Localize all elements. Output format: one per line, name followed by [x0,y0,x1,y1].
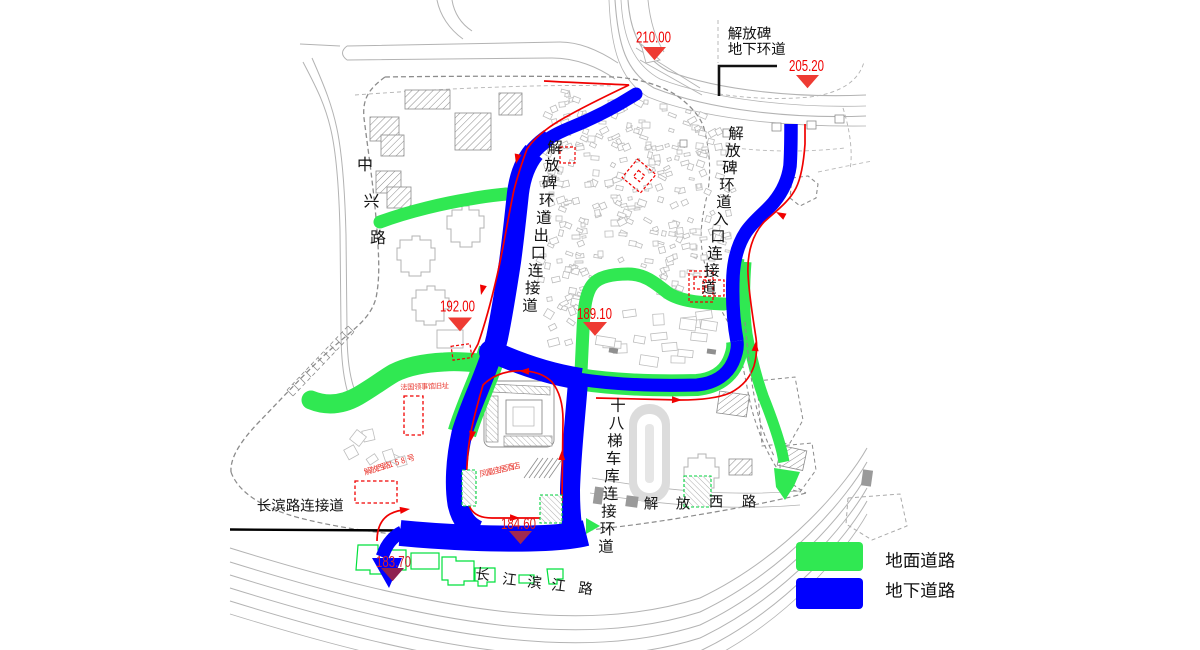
svg-text:205.20: 205.20 [789,58,824,75]
svg-text:184.60: 184.60 [501,516,536,533]
svg-text:189.10: 189.10 [577,306,612,323]
svg-text:192.00: 192.00 [440,299,475,316]
svg-text:210.00: 210.00 [636,30,671,47]
